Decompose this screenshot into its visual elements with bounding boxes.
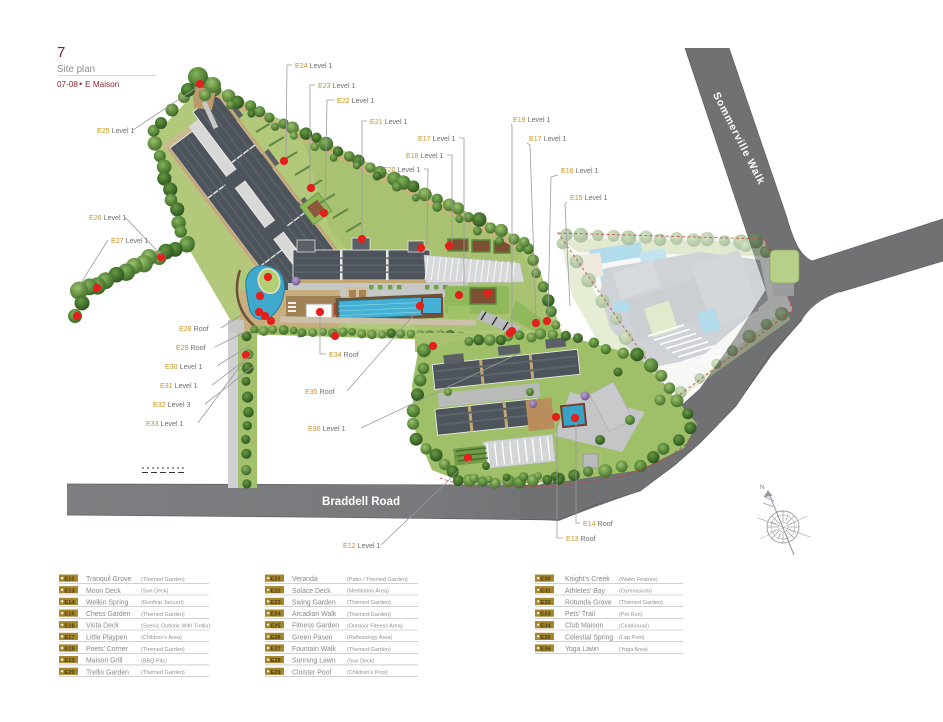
svg-text:Little Playpen: Little Playpen (86, 634, 128, 641)
svg-text:(Rooftop Jacuzzi): (Rooftop Jacuzzi) (141, 600, 184, 606)
svg-text:(Sun Deck): (Sun Deck) (347, 659, 375, 665)
svg-text:E32: E32 (540, 600, 550, 606)
svg-text:E34: E34 (540, 623, 551, 629)
svg-text:Green Paseo: Green Paseo (292, 634, 333, 641)
svg-text:(Themed Garden): (Themed Garden) (141, 612, 185, 618)
svg-text:Trellis Garden: Trellis Garden (86, 669, 129, 676)
svg-text:E30Level 1: E30Level 1 (165, 363, 203, 371)
svg-text:(Themed Garden): (Themed Garden) (141, 670, 185, 676)
svg-text:(Themed Garden): (Themed Garden) (141, 647, 185, 653)
svg-text:E12: E12 (64, 577, 74, 583)
svg-text:Sunning Lawn: Sunning Lawn (292, 658, 336, 665)
svg-text:(Clubhouse): (Clubhouse) (619, 624, 649, 630)
svg-text:E21: E21 (270, 577, 281, 583)
svg-text:Fountain Walk: Fountain Walk (292, 646, 336, 653)
svg-text:Cloister Pool: Cloister Pool (292, 669, 332, 676)
svg-text:E35Roof: E35Roof (305, 388, 335, 396)
svg-text:(Themed Garden): (Themed Garden) (347, 612, 391, 618)
svg-text:(Reflexology Area): (Reflexology Area) (347, 635, 392, 641)
svg-text:Yoga Lawn: Yoga Lawn (565, 646, 599, 653)
svg-text:(Gymnasium): (Gymnasium) (619, 589, 652, 595)
svg-text:E22: E22 (270, 588, 280, 594)
svg-text:Maison Grill: Maison Grill (86, 658, 123, 665)
svg-text:E26Level 1: E26Level 1 (89, 214, 127, 222)
svg-text:(Meditation Area): (Meditation Area) (347, 589, 389, 595)
svg-text:(Themed Garden): (Themed Garden) (141, 577, 185, 583)
svg-text:Arcadian Walk: Arcadian Walk (292, 611, 337, 618)
svg-text:E19Level 1: E19Level 1 (513, 116, 551, 124)
svg-text:(Outdoor Fitness Area): (Outdoor Fitness Area) (347, 624, 403, 630)
svg-text:E17Level 1: E17Level 1 (418, 135, 456, 143)
svg-text:E28: E28 (270, 658, 281, 664)
svg-text:E20Level 1: E20Level 1 (383, 166, 421, 174)
svg-text:Moon Deck: Moon Deck (86, 588, 121, 595)
svg-text:E23: E23 (270, 600, 281, 606)
svg-text:Knight’s Creek: Knight’s Creek (565, 576, 610, 583)
svg-text:(BBQ Pits): (BBQ Pits) (141, 659, 167, 665)
svg-text:E18Level 1: E18Level 1 (406, 152, 444, 160)
svg-text:Welkin Spring: Welkin Spring (86, 599, 129, 606)
svg-text:E18: E18 (64, 647, 75, 653)
svg-text:Braddell Road: Braddell Road (322, 496, 400, 508)
svg-text:(Yoga Area): (Yoga Area) (619, 647, 648, 653)
svg-text:Fitness Garden: Fitness Garden (292, 623, 339, 630)
svg-text:E15Level 1: E15Level 1 (570, 194, 608, 202)
svg-text:Celestial Spring: Celestial Spring (565, 634, 613, 641)
svg-text:Tranquil Grove: Tranquil Grove (86, 576, 131, 583)
svg-text:Site plan: Site plan (57, 64, 95, 75)
svg-text:(Children’s Area): (Children’s Area) (141, 635, 182, 641)
svg-text:E20: E20 (64, 670, 74, 676)
svg-text:E17Level 1: E17Level 1 (529, 135, 567, 143)
svg-text:E15: E15 (64, 612, 75, 618)
svg-text:E29: E29 (270, 670, 281, 676)
svg-text:E25: E25 (270, 623, 281, 629)
svg-text:E35: E35 (540, 635, 551, 641)
svg-text:Club Maison: Club Maison (565, 623, 603, 630)
svg-text:E24Level 1: E24Level 1 (295, 62, 333, 70)
svg-text:E23Level 1: E23Level 1 (318, 82, 356, 90)
svg-text:Poets’ Corner: Poets’ Corner (86, 646, 129, 653)
svg-text:E21Level 1: E21Level 1 (370, 118, 408, 126)
svg-text:E14Roof: E14Roof (583, 520, 613, 528)
svg-text:E30: E30 (540, 577, 550, 583)
svg-text:E27Level 1: E27Level 1 (111, 237, 149, 245)
svg-text:(Children’s Pool): (Children’s Pool) (347, 670, 388, 676)
svg-text:E26: E26 (270, 635, 281, 641)
svg-text:E27: E27 (270, 647, 280, 653)
svg-text:(Pet Run): (Pet Run) (619, 612, 643, 618)
svg-text:E29Roof: E29Roof (176, 344, 206, 352)
svg-text:E17: E17 (64, 635, 74, 641)
svg-text:E24: E24 (270, 612, 281, 618)
svg-text:E25Level 1: E25Level 1 (97, 127, 135, 135)
svg-text:(Sun Deck): (Sun Deck) (141, 589, 169, 595)
svg-text:Athletes’ Bay: Athletes’ Bay (565, 588, 606, 595)
svg-text:E22Level 1: E22Level 1 (337, 97, 375, 105)
svg-text:Veranda: Veranda (292, 576, 318, 583)
svg-text:7: 7 (57, 44, 65, 61)
svg-text:E19: E19 (64, 658, 75, 664)
svg-text:Chess Garden: Chess Garden (86, 611, 131, 618)
svg-text:Rotunda Grove: Rotunda Grove (565, 599, 612, 606)
svg-text:E16Level 1: E16Level 1 (561, 167, 599, 175)
svg-text:E13: E13 (64, 588, 75, 594)
svg-text:(Themed Garden): (Themed Garden) (619, 600, 663, 606)
svg-text:E28Roof: E28Roof (179, 325, 209, 333)
svg-text:N: N (760, 485, 764, 491)
svg-text:(Scenic Outlook With Trellis): (Scenic Outlook With Trellis) (141, 624, 210, 630)
svg-text:E13Roof: E13Roof (566, 535, 596, 543)
svg-text:Vista Deck: Vista Deck (86, 623, 119, 630)
svg-text:(Lap Pool): (Lap Pool) (619, 635, 645, 641)
svg-text:(Themed Garden): (Themed Garden) (347, 600, 391, 606)
svg-text:E33: E33 (540, 612, 551, 618)
svg-text:E14: E14 (64, 600, 75, 606)
svg-text:(Themed Garden): (Themed Garden) (347, 647, 391, 653)
svg-text:E34Roof: E34Roof (329, 351, 359, 359)
svg-text:E31: E31 (540, 588, 551, 594)
svg-text:(Water Feature): (Water Feature) (619, 577, 658, 583)
svg-text:E36Level 1: E36Level 1 (308, 425, 346, 433)
svg-text:E12Level 1: E12Level 1 (343, 542, 381, 550)
svg-text:E36: E36 (540, 647, 551, 653)
svg-text:E31Level 1: E31Level 1 (160, 382, 198, 390)
svg-text:E32Level 3: E32Level 3 (153, 401, 191, 409)
svg-text:07-08•E Maison: 07-08•E Maison (57, 79, 120, 89)
svg-text:E33Level 1: E33Level 1 (146, 420, 184, 428)
svg-text:Solace Deck: Solace Deck (292, 588, 331, 595)
svg-text:Swing Garden: Swing Garden (292, 599, 336, 606)
svg-text:E16: E16 (64, 623, 75, 629)
svg-text:Pets’ Trail: Pets’ Trail (565, 611, 595, 618)
svg-text:(Patio / Themed Garden): (Patio / Themed Garden) (347, 577, 408, 583)
